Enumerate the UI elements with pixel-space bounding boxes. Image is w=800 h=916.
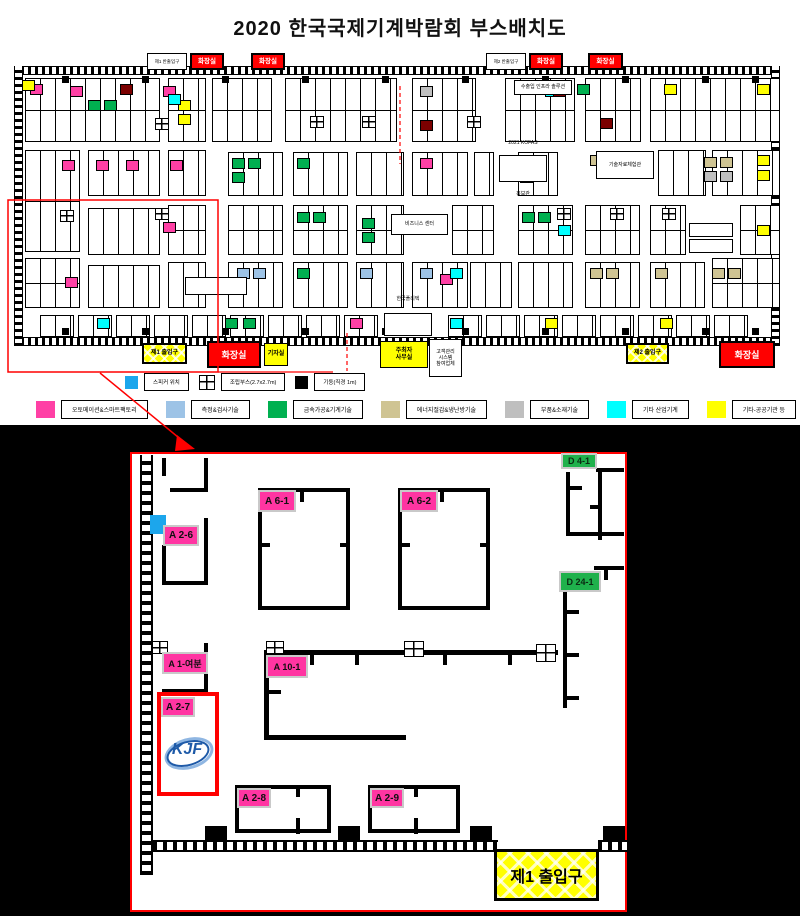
legend-symbols: 스피커 위치조립부스(2.7x2.7m)기둥(직경 1m) [125,373,405,391]
booth-block [356,152,404,196]
detail-wall [594,566,624,570]
loading-gate-box: 제1 반출입구 [147,53,187,70]
category-swatch [268,401,287,418]
legend-category-item: 오토메이션&스마트팩토리 [36,400,148,419]
booth-cell-green [243,318,256,329]
booth-cell-gray [420,86,433,97]
assembled-booth-icon [266,641,284,654]
booth-cell-green [248,158,261,169]
booth-block [212,78,272,142]
booth-cell-blue [360,268,373,279]
booth-block [712,258,780,308]
toilet-box-label: 화장실 [222,350,247,360]
booth-layout-page: 2020 한국국제기계박람회 부스배치도 수출입 인프라 솔루션2021 KOF… [0,0,800,916]
legend-category-item: 에너지절감&냉난방기술 [381,400,487,419]
pillar [622,328,629,335]
booth-cell-green [362,218,375,229]
gate-box: 제1 출입구 [142,343,187,364]
detail-wall [264,735,406,740]
crm-vendor-box: 고객관리시스템참여업체 [429,339,462,377]
booth-cell-green [538,212,551,223]
booth-cell-yellow [757,225,770,236]
booth-block [192,315,226,337]
booth-cell-blue [253,268,266,279]
booth-cell-yellow [757,170,770,181]
pillar [622,76,629,83]
booth-cell-pink [96,160,109,171]
legend-symbol-label: 조립부스(2.7x2.7m) [221,373,286,391]
toilet-box: 화장실 [207,341,261,368]
booth-label-a-2-6: A 2-6 [163,525,199,546]
detail-wall [567,696,579,700]
loading-gate-box-label: 제2 반출입구 [494,59,518,65]
detail-wall [590,505,602,509]
detail-wall [170,488,208,492]
legend-symbol-item: 스피커 위치 [125,373,189,391]
booth-block [658,150,706,196]
booth-cell-gray [704,171,717,182]
booth-cell-green [313,212,326,223]
pillar [222,328,229,335]
office-box-label: 주최자 [396,348,413,355]
booth-cell-darkred [120,84,133,95]
booth-block [228,205,283,255]
assembled-booth-icon [155,208,169,220]
detail-wall [567,653,579,657]
booth-cell-tan [590,268,603,279]
booth-label-a-6-1: A 6-1 [258,490,296,512]
pillar [702,328,709,335]
legend-category-label: 기타 산업기계 [632,400,689,419]
booth-cell-green [577,84,590,95]
booth-cell-blue [420,268,433,279]
booth-block [452,205,494,255]
pillar [302,76,309,83]
booth-label-a-2-9: A 2-9 [370,788,404,808]
booth-block [518,262,573,308]
pillar [62,76,69,83]
booth-cell-yellow [178,114,191,125]
info-box: 한국폴리텍대학 [384,313,432,336]
pillar [752,328,759,335]
booth-cell-pink [65,277,78,288]
detail-wall [567,610,579,614]
office-box: 기자실 [264,343,288,366]
detail-wall [563,588,567,708]
toilet-box: 화장실 [190,53,224,70]
speaker-swatch [125,376,138,389]
booth-block [585,78,641,142]
booth-cell-pink [420,158,433,169]
detail-gate1-label: 제1 출입구 [510,863,582,887]
category-swatch [36,401,55,418]
pillar [142,328,149,335]
assembled-booth-icon [662,208,676,220]
booth-cell-pink [126,160,139,171]
info-box [689,239,733,253]
booth-cell-yellow [757,155,770,166]
detail-wall [443,655,447,665]
detail-wall [355,655,359,665]
booth-cell-green [88,100,101,111]
detail-wall [162,458,166,476]
info-box: 수출입 인프라 솔루션 [514,80,572,95]
legend-category-item: 부품&소재기술 [505,400,589,419]
assembled-booth-icon [467,116,481,128]
detail-wall [604,570,608,580]
booth-cell-cyan [168,94,181,105]
toilet-box: 화장실 [529,53,563,70]
pillar [702,76,709,83]
booth-label-a-2-8: A 2-8 [237,788,271,808]
pillar [222,76,229,83]
booth-block [474,152,494,196]
toilet-box-label: 화장실 [597,58,615,66]
toilet-box: 화장실 [588,53,623,70]
booth-cell-pink [163,222,176,233]
kjf-logo: KJF [163,727,211,775]
pillar [302,328,309,335]
pillar [752,76,759,83]
gate-box: 제2 출입구 [626,343,669,364]
info-box [689,223,733,237]
booth-cell-tan [712,268,725,279]
pillar [462,328,469,335]
detail-wall [570,486,582,490]
booth-cell-darkred [420,120,433,131]
detail-wall [204,518,208,585]
detail-wall [204,458,208,492]
pillar [62,328,69,335]
booth-cell-green [297,212,310,223]
booth-block [486,315,520,337]
booth-cell-tan [606,268,619,279]
loading-gate-box: 제2 반출입구 [486,53,526,70]
toilet-box-label: 화장실 [537,58,555,66]
loading-gate-box-label: 제1 반출입구 [155,59,179,65]
legend-categories: 오토메이션&스마트팩토리측정&검사기술금속가공&기계기술에너지절감&냉난방기술부… [36,399,796,419]
booth-block [268,315,302,337]
toilet-box-label: 화장실 [198,58,216,66]
booth-block [562,315,596,337]
booth-cell-yellow [22,80,35,91]
assembled-booth-icon [557,208,571,220]
toilet-box: 화장실 [719,341,775,368]
category-swatch [166,401,185,418]
booth-label-a-1-여분: A 1-여분 [162,652,208,674]
legend-category-label: 측정&검사기술 [191,400,250,419]
legend-category-label: 오토메이션&스마트팩토리 [61,400,148,419]
gate-box-label: 제1 출입구 [151,350,178,357]
detail-wall-bottom [598,840,627,852]
booth-label-a-10-1: A 10-1 [266,655,308,678]
booth-cell-tan [720,157,733,168]
booth-cell-tan [655,268,668,279]
legend-symbol-item: 조립부스(2.7x2.7m) [199,373,286,391]
booth-block [168,150,206,196]
booth-cell-tan [728,268,741,279]
detail-wall [566,472,570,536]
booth-block [714,315,748,337]
booth-block [88,265,160,308]
booth-cell-yellow [664,84,677,95]
booth-block [88,208,160,255]
booth-cell-tan [704,157,717,168]
detail-wall [162,545,166,585]
category-swatch [607,401,626,418]
category-swatch [707,401,726,418]
detail-gate1-entrance: 제1 출입구 [494,849,599,901]
assembled-booth-icon [536,644,556,662]
overview-wall-top [14,66,780,75]
overview-wall-left [14,66,23,346]
legend-category-label: 금속가공&기계기술 [293,400,363,419]
booth-cell-green [297,268,310,279]
booth-block [88,150,160,196]
assembled-booth-icon [310,116,324,128]
booth-cell-green [362,232,375,243]
booth-cell-cyan [450,268,463,279]
legend-category-label: 기타-공공기관 등 [732,400,796,419]
booth-block [306,315,340,337]
office-box: 주최자사무실 [380,341,428,368]
booth-cell-pink [170,160,183,171]
pillar [142,76,149,83]
legend-symbol-label: 기둥(직경 1m) [314,373,365,391]
toilet-box-label: 화장실 [259,58,277,66]
page-title: 2020 한국국제기계박람회 부스배치도 [0,12,800,41]
info-box: 비즈니스 센터 [391,214,448,235]
booth-cell-green [232,172,245,183]
booth-label-d-24-1: D 24-1 [559,571,601,592]
pillar-swatch [295,376,308,389]
booth-cell-green [232,158,245,169]
detail-wall [269,690,281,694]
gate-box-label: 제2 출입구 [634,350,661,357]
office-box-label: 기자실 [268,351,285,358]
booth-block [154,315,188,337]
detail-wall [508,655,512,665]
assembled-booth-icon [362,116,376,128]
info-box-label: 홍보관 [516,169,530,220]
info-box-label: 비즈니스 센터 [405,199,434,250]
detail-wall-bottom [153,840,498,852]
booth-cell-green [297,158,310,169]
category-swatch [505,401,524,418]
detail-wall [162,581,208,585]
detail-wall [310,655,314,665]
assembled-booth-icon [199,375,215,390]
booth-label-a-6-2: A 6-2 [400,490,438,512]
assembled-booth-icon [155,118,169,130]
crm-vendor-box-label: 참여업체 [436,361,454,367]
booth-label-d-4-1: D 4-1 [561,453,597,469]
toilet-box-label: 화장실 [735,350,760,360]
assembled-booth-icon [404,641,424,657]
booth-cell-cyan [97,318,110,329]
assembled-booth-icon [610,208,624,220]
office-box-label: 사무실 [396,355,413,362]
booth-cell-pink [62,160,75,171]
booth-label-a-2-7: A 2-7 [161,697,195,717]
booth-cell-darkred [600,118,613,129]
booth-block [285,78,397,142]
logo-text: KJF [163,741,211,759]
booth-block [470,262,512,308]
info-box-label: 2021 KOFAS [508,118,537,169]
info-box-label: 기술자료체험관 [609,140,641,191]
legend-category-item: 기타 산업기계 [607,400,689,419]
booth-cell-yellow [660,318,673,329]
booth-cell-gray [720,171,733,182]
info-box [185,277,247,295]
pillar [462,76,469,83]
pillar [542,328,549,335]
booth-cell-cyan [558,225,571,236]
legend-category-label: 에너지절감&냉난방기술 [406,400,487,419]
legend-category-item: 기타-공공기관 등 [707,400,796,419]
category-swatch [381,401,400,418]
assembled-booth-icon [60,210,74,222]
info-box: 2021 KOFAS홍보관 [499,155,547,182]
info-box: 기술자료체험관 [596,151,654,179]
legend-category-item: 금속가공&기계기술 [268,400,363,419]
booth-cell-pink [350,318,363,329]
info-box-label: 한국폴리텍 [396,274,419,325]
legend-category-label: 부품&소재기술 [530,400,589,419]
toilet-box: 화장실 [251,53,285,70]
legend-category-item: 측정&검사기술 [166,400,250,419]
pillar [382,76,389,83]
legend-symbol-item: 기둥(직경 1m) [295,373,365,391]
legend-symbol-label: 스피커 위치 [144,373,189,391]
booth-cell-green [104,100,117,111]
booth-cell-pink [70,86,83,97]
detail-wall [566,532,624,536]
booth-cell-yellow [757,84,770,95]
